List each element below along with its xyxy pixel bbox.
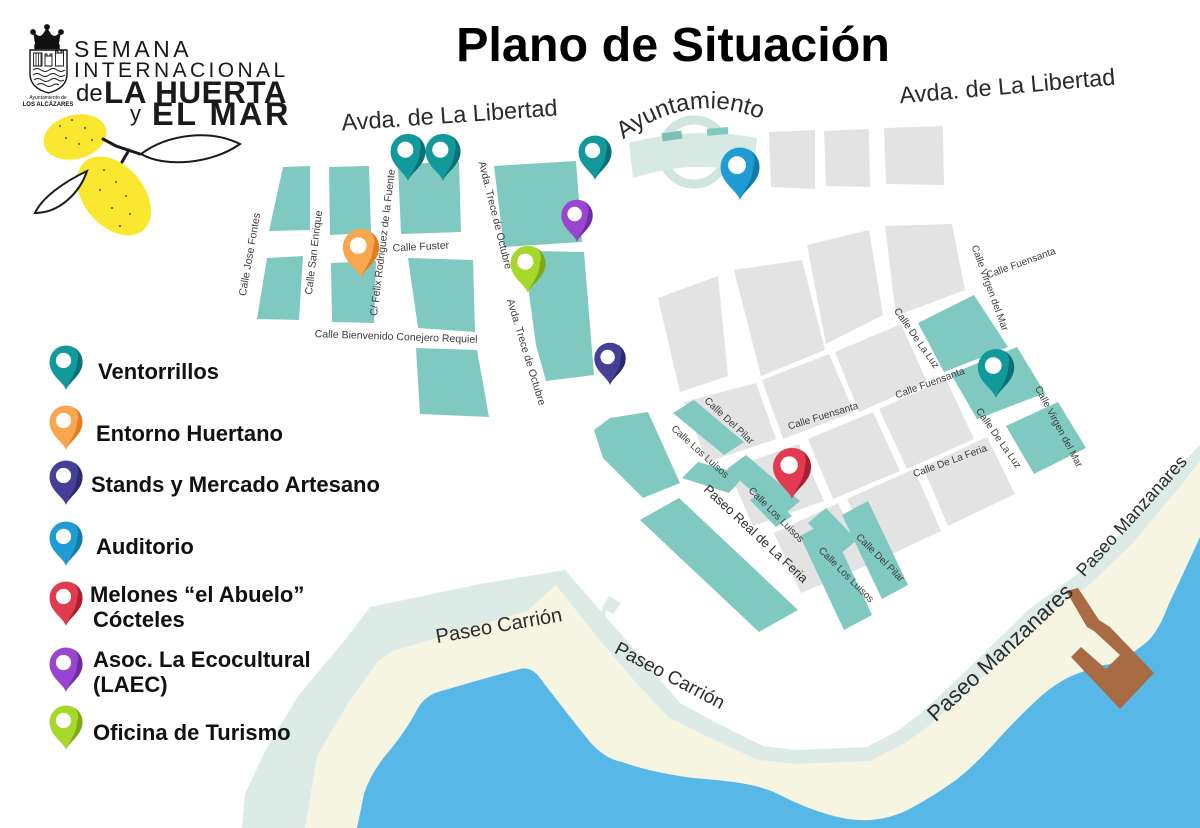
svg-text:Melones “el Abuelo”: Melones “el Abuelo” <box>90 582 304 607</box>
svg-text:Ventorrillos: Ventorrillos <box>98 359 219 384</box>
svg-text:(LAEC): (LAEC) <box>93 672 168 697</box>
svg-text:Plano de Situación: Plano de Situación <box>456 18 890 72</box>
svg-text:y: y <box>130 101 141 126</box>
svg-text:Entorno Huertano: Entorno Huertano <box>96 421 283 446</box>
svg-text:de: de <box>76 80 103 107</box>
svg-text:LOS ALCÁZARES: LOS ALCÁZARES <box>23 101 74 108</box>
svg-text:EL MAR: EL MAR <box>152 96 291 132</box>
svg-text:Auditorio: Auditorio <box>96 534 194 559</box>
svg-text:Oficina de Turismo: Oficina de Turismo <box>93 720 291 745</box>
svg-text:Ayuntamiento de: Ayuntamiento de <box>29 95 67 101</box>
svg-text:Asoc. La Ecocultural: Asoc. La Ecocultural <box>93 647 311 672</box>
svg-text:Cócteles: Cócteles <box>93 607 185 632</box>
svg-text:Stands y Mercado Artesano: Stands y Mercado Artesano <box>91 472 380 497</box>
